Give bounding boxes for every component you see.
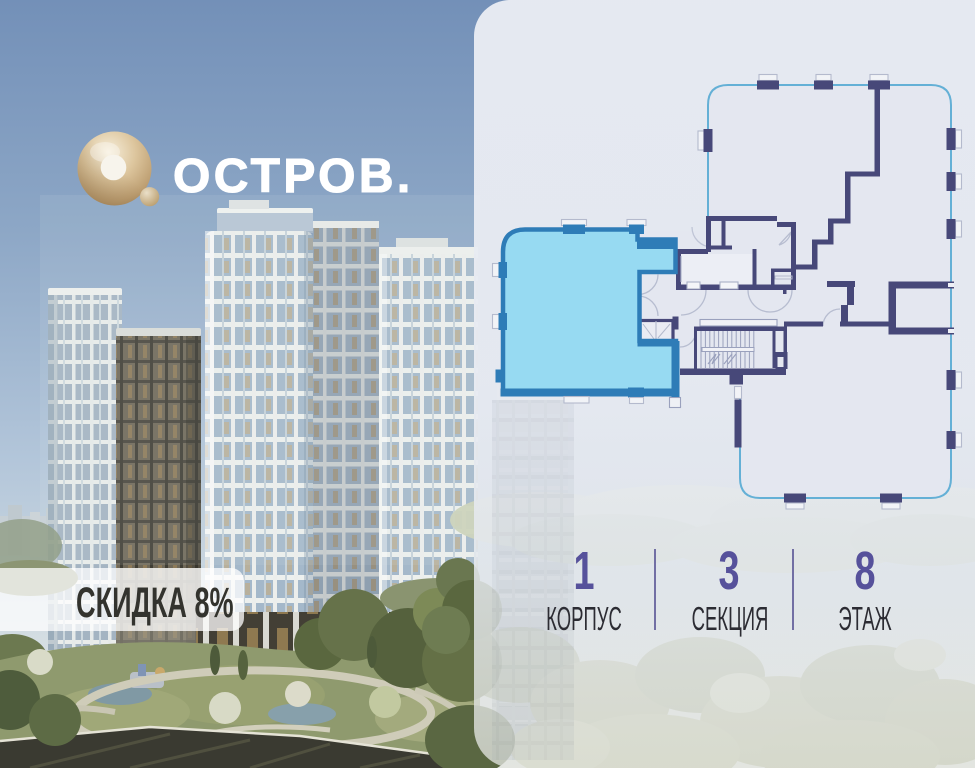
svg-text:ОСТРОВ.: ОСТРОВ.: [173, 150, 414, 203]
